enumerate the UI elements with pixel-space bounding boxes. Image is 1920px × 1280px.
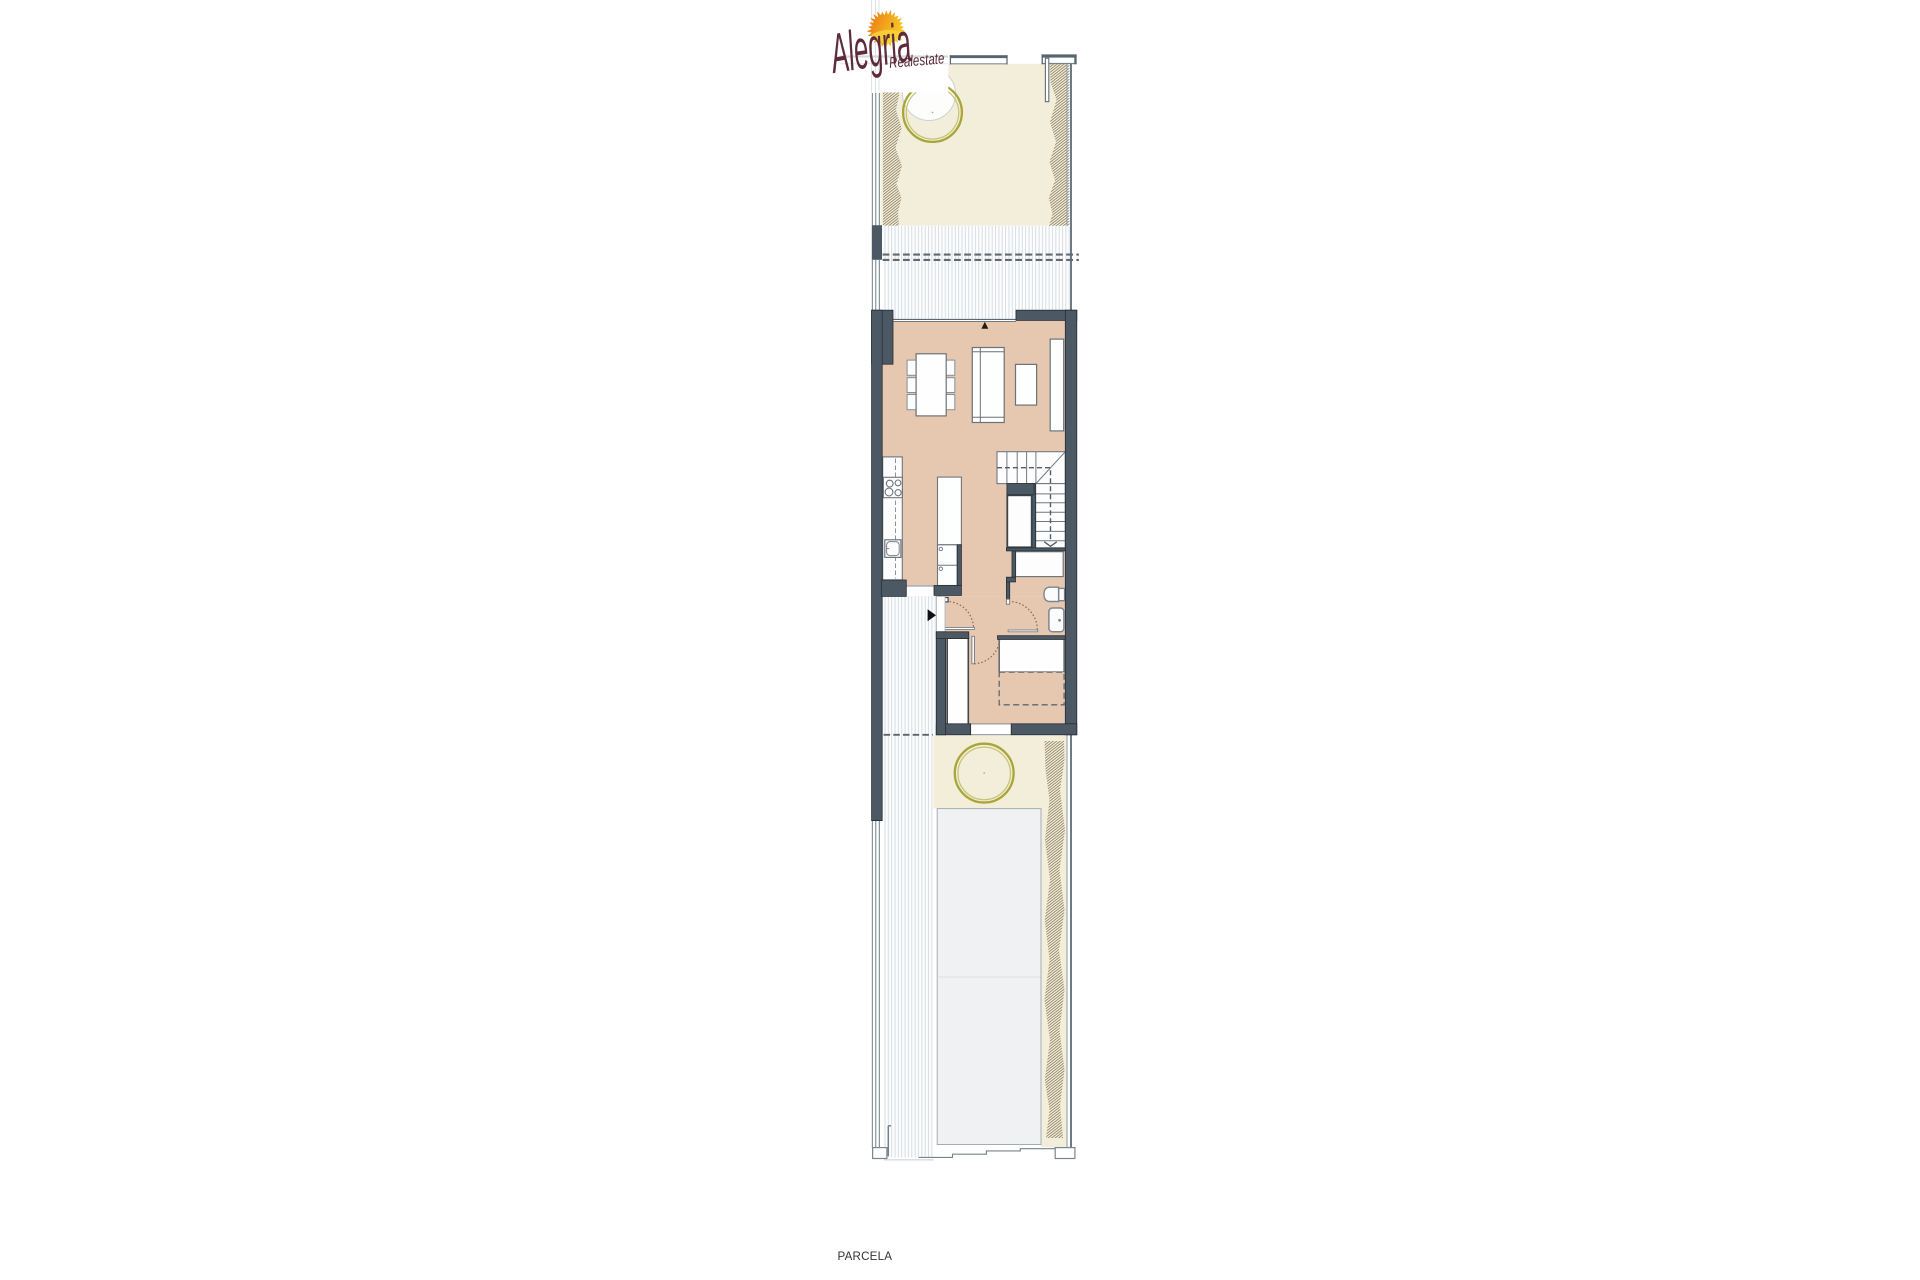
svg-text:Alegria: Alegria	[825, 12, 916, 86]
svg-text:PARCELA: PARCELA	[838, 1250, 893, 1263]
